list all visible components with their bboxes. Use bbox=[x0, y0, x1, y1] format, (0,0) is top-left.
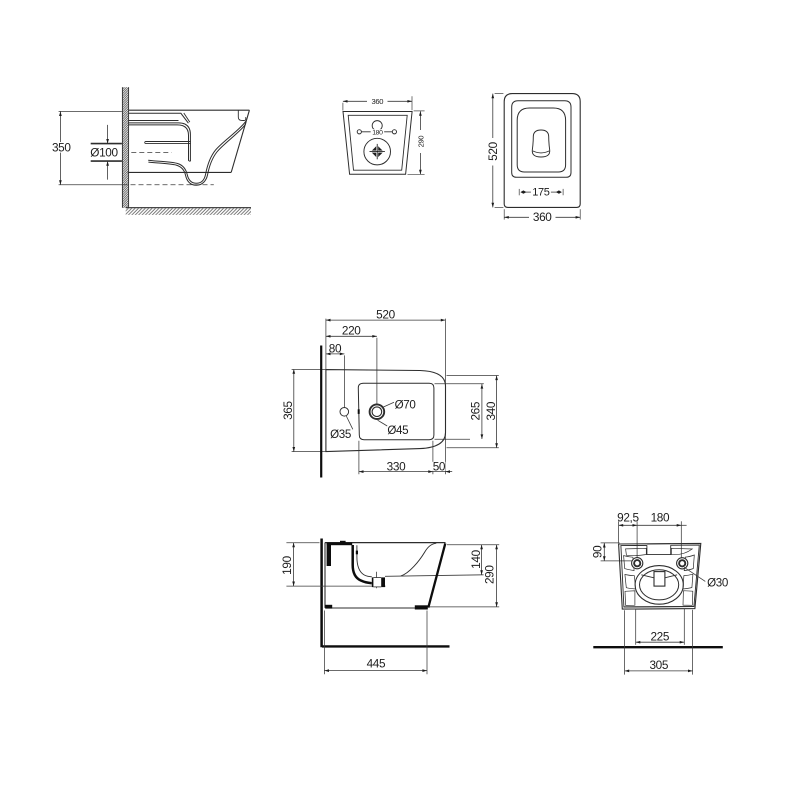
svg-text:360: 360 bbox=[371, 97, 383, 106]
svg-text:50: 50 bbox=[433, 459, 446, 473]
svg-text:340: 340 bbox=[484, 401, 498, 420]
svg-text:Ø35: Ø35 bbox=[330, 428, 351, 441]
svg-text:445: 445 bbox=[367, 657, 386, 671]
svg-text:92,5: 92,5 bbox=[617, 511, 639, 525]
svg-text:190: 190 bbox=[280, 555, 294, 574]
svg-text:220: 220 bbox=[342, 324, 361, 338]
svg-text:140: 140 bbox=[469, 549, 483, 568]
svg-text:Ø30: Ø30 bbox=[707, 576, 728, 589]
svg-text:180: 180 bbox=[651, 511, 670, 525]
svg-text:350: 350 bbox=[52, 140, 71, 154]
svg-text:175: 175 bbox=[532, 187, 550, 199]
svg-text:80: 80 bbox=[329, 341, 342, 355]
svg-text:290: 290 bbox=[482, 565, 496, 584]
svg-text:290: 290 bbox=[417, 136, 426, 148]
svg-text:Ø70: Ø70 bbox=[395, 398, 416, 411]
svg-text:225: 225 bbox=[650, 629, 669, 643]
svg-text:265: 265 bbox=[469, 401, 483, 420]
svg-text:Ø100: Ø100 bbox=[90, 145, 118, 159]
svg-text:90: 90 bbox=[590, 545, 604, 558]
svg-text:520: 520 bbox=[376, 307, 395, 321]
svg-text:365: 365 bbox=[281, 400, 295, 419]
svg-text:360: 360 bbox=[533, 210, 552, 224]
svg-text:Ø45: Ø45 bbox=[387, 424, 408, 437]
svg-text:180: 180 bbox=[372, 130, 383, 137]
svg-text:330: 330 bbox=[387, 459, 406, 473]
svg-text:305: 305 bbox=[649, 658, 668, 672]
svg-text:520: 520 bbox=[486, 141, 500, 160]
